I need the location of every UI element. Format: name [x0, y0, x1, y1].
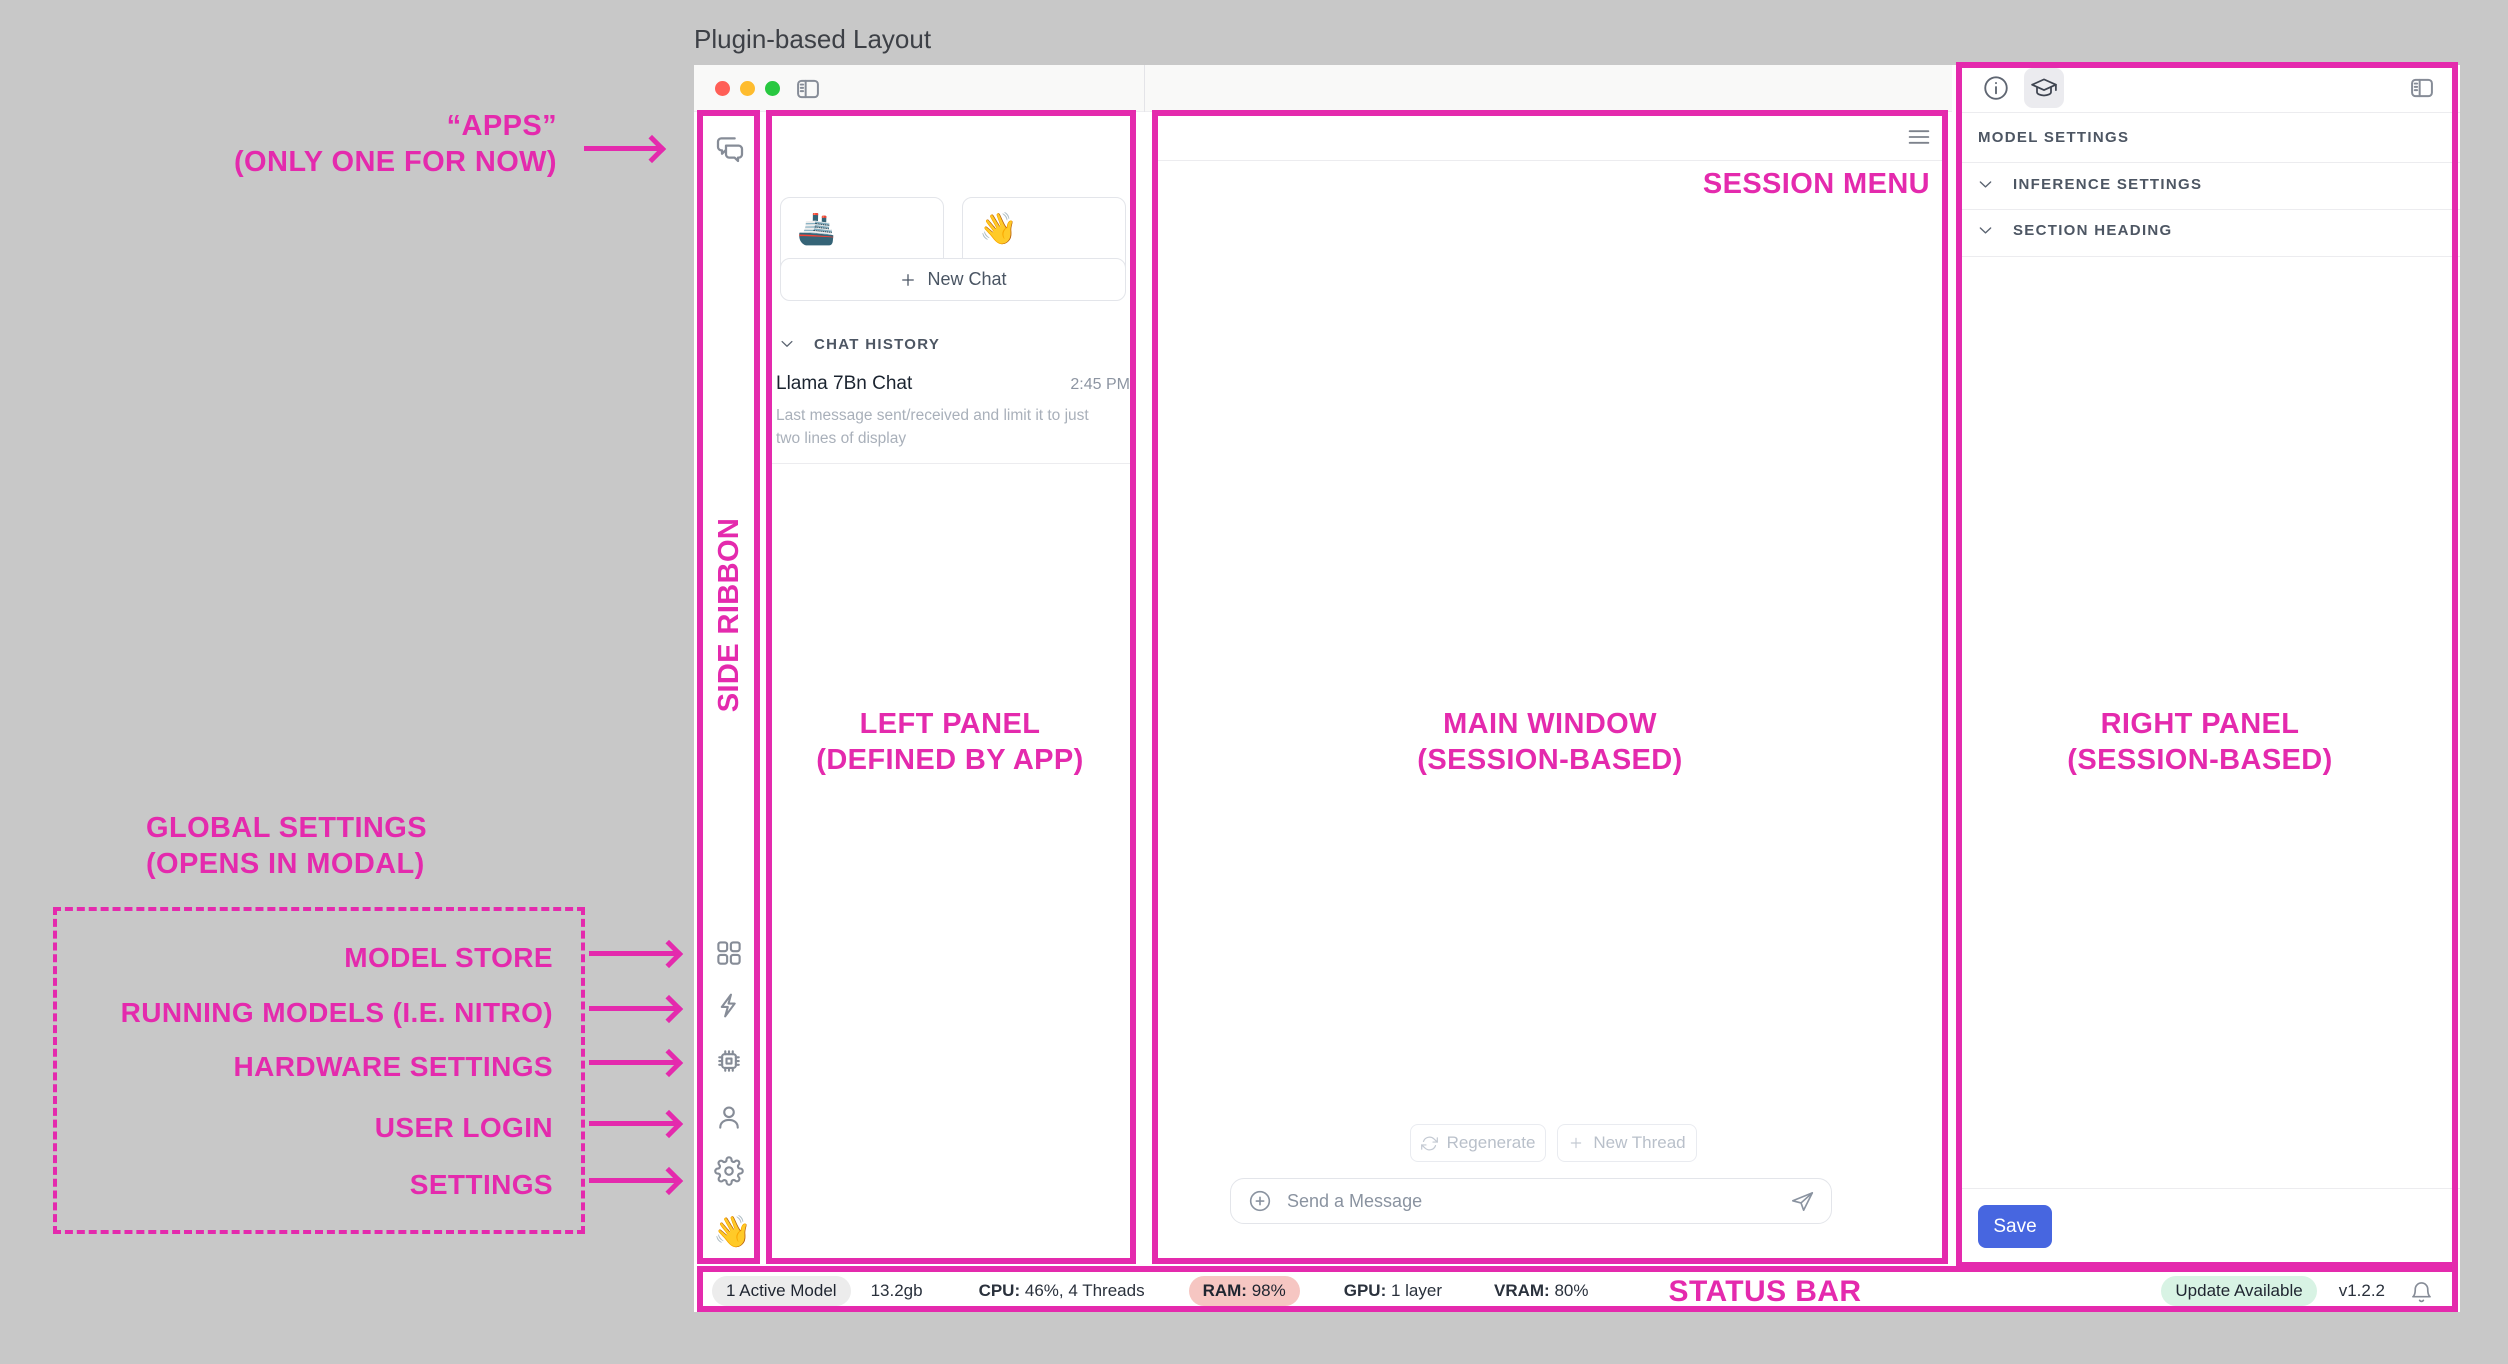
apps-arrow — [584, 146, 660, 151]
user-login-arrow — [589, 1121, 677, 1126]
divider — [1956, 209, 2460, 210]
chat-item-title: Llama 7Bn Chat — [776, 373, 912, 395]
model-store-arrow — [589, 951, 677, 956]
send-icon[interactable] — [1789, 1188, 1815, 1214]
save-button[interactable]: Save — [1978, 1205, 2052, 1248]
toggle-left-sidebar-icon[interactable] — [794, 75, 822, 103]
chevron-down-icon — [1976, 175, 1995, 194]
new-chat-button[interactable]: New Chat — [780, 258, 1126, 301]
hardware-settings-annotation: HARDWARE SETTINGS — [234, 1051, 553, 1083]
main-header-divider — [1158, 160, 1942, 161]
status-bar-annotation: STATUS BAR — [1669, 1272, 1862, 1312]
divider — [1956, 256, 2460, 257]
page-title: Plugin-based Layout — [694, 24, 931, 55]
right-panel-annotation: RIGHT PANEL (SESSION-BASED) — [2067, 706, 2332, 778]
global-settings-group-box: MODEL STORE RUNNING MODELS (I.E. NITRO) … — [53, 907, 585, 1234]
cpu-label: CPU: — [979, 1281, 1021, 1300]
section-heading-label: SECTION HEADING — [2013, 222, 2173, 239]
message-input[interactable]: Send a Message — [1230, 1178, 1832, 1224]
toggle-right-sidebar-icon[interactable] — [2408, 74, 2436, 102]
section-heading-section[interactable]: SECTION HEADING — [1976, 221, 2173, 240]
apps-annotation: “APPS” (ONLY ONE FOR NOW) — [234, 108, 557, 180]
bell-icon[interactable] — [2409, 1279, 2434, 1304]
model-settings-label: MODEL SETTINGS — [1978, 129, 2129, 146]
ship-emoji-icon: 🚢 — [797, 212, 927, 246]
tab-model-settings[interactable] — [2024, 68, 2064, 108]
new-thread-button[interactable]: New Thread — [1557, 1124, 1697, 1162]
minimize-window-button[interactable] — [740, 81, 755, 96]
attach-plus-circle-icon[interactable] — [1247, 1188, 1273, 1214]
gpu-label: GPU: — [1344, 1281, 1387, 1300]
inference-settings-section[interactable]: INFERENCE SETTINGS — [1976, 175, 2202, 194]
side-ribbon-annotation: SIDE RIBBON — [711, 518, 747, 713]
model-store-icon[interactable] — [714, 938, 744, 968]
chat-item-time: 2:45 PM — [1070, 376, 1130, 394]
regenerate-label: Regenerate — [1447, 1133, 1536, 1153]
divider — [1956, 1188, 2460, 1189]
right-panel: MODEL SETTINGS INFERENCE SETTINGS SECTIO… — [1956, 65, 2460, 1265]
model-store-annotation: MODEL STORE — [344, 942, 553, 974]
graduation-cap-icon — [2030, 74, 2058, 102]
chevron-down-icon — [778, 335, 796, 353]
refresh-icon — [1421, 1135, 1438, 1152]
hardware-settings-arrow — [589, 1060, 677, 1065]
settings-gear-icon[interactable] — [714, 1156, 744, 1186]
chat-history-label: CHAT HISTORY — [814, 336, 940, 353]
update-available-badge[interactable]: Update Available — [2161, 1276, 2316, 1306]
wave-emoji-icon: 👋 — [979, 212, 1109, 246]
global-settings-annotation: GLOBAL SETTINGS (OPENS IN MODAL) — [146, 810, 427, 882]
message-placeholder: Send a Message — [1287, 1191, 1775, 1212]
hand-wave-button[interactable]: 👋 — [713, 1213, 752, 1250]
status-bar: 1 Active Model 13.2gb CPU: 46%, 4 Thread… — [694, 1270, 2460, 1312]
right-header-divider — [1956, 112, 2460, 113]
close-window-button[interactable] — [715, 81, 730, 96]
settings-arrow — [589, 1178, 677, 1183]
plus-icon — [899, 271, 917, 289]
new-chat-label: New Chat — [927, 269, 1006, 290]
plus-icon — [1568, 1135, 1584, 1151]
app-window: 👋 🚢 Explore > 👋 Create Bot + New Chat CH… — [694, 65, 2460, 1312]
user-login-annotation: USER LOGIN — [375, 1112, 553, 1144]
design-canvas: Plugin-based Layout — [0, 0, 2508, 1364]
session-menu-annotation: SESSION MENU — [1703, 166, 1930, 202]
settings-annotation: SETTINGS — [410, 1169, 553, 1201]
running-models-icon[interactable] — [715, 991, 744, 1020]
new-thread-label: New Thread — [1593, 1133, 1685, 1153]
toolbar-divider — [1144, 65, 1145, 112]
chat-list-item[interactable]: Llama 7Bn Chat 2:45 PM Last message sent… — [776, 373, 1130, 450]
main-window-annotation: MAIN WINDOW (SESSION-BASED) — [1417, 706, 1682, 778]
chat-item-divider — [766, 463, 1130, 464]
regenerate-button[interactable]: Regenerate — [1410, 1124, 1546, 1162]
version-label: v1.2.2 — [2339, 1281, 2385, 1301]
chevron-down-icon — [1976, 221, 1995, 240]
inference-settings-label: INFERENCE SETTINGS — [2013, 176, 2202, 193]
cpu-value: 46%, 4 Threads — [1025, 1281, 1145, 1300]
gpu-value: 1 layer — [1391, 1281, 1442, 1300]
vram-value: 80% — [1554, 1281, 1588, 1300]
active-model-badge: 1 Active Model — [712, 1276, 851, 1306]
user-login-icon[interactable] — [714, 1102, 744, 1132]
running-models-annotation: RUNNING MODELS (I.E. NITRO) — [121, 997, 553, 1029]
hardware-settings-icon[interactable] — [714, 1046, 744, 1076]
zoom-window-button[interactable] — [765, 81, 780, 96]
left-panel-annotation: LEFT PANEL (DEFINED BY APP) — [816, 706, 1083, 778]
session-menu-icon[interactable] — [1905, 123, 1933, 151]
ram-badge: RAM: 98% — [1189, 1276, 1300, 1306]
model-size-value: 13.2gb — [871, 1281, 923, 1301]
vram-label: VRAM: — [1494, 1281, 1550, 1300]
running-models-arrow — [589, 1006, 677, 1011]
chat-app-icon[interactable] — [714, 133, 746, 165]
info-tab-icon[interactable] — [1981, 73, 2011, 103]
divider — [1956, 162, 2460, 163]
window-toolbar — [694, 65, 1952, 112]
chat-history-header[interactable]: CHAT HISTORY — [778, 335, 940, 353]
chat-item-preview: Last message sent/received and limit it … — [776, 404, 1116, 450]
